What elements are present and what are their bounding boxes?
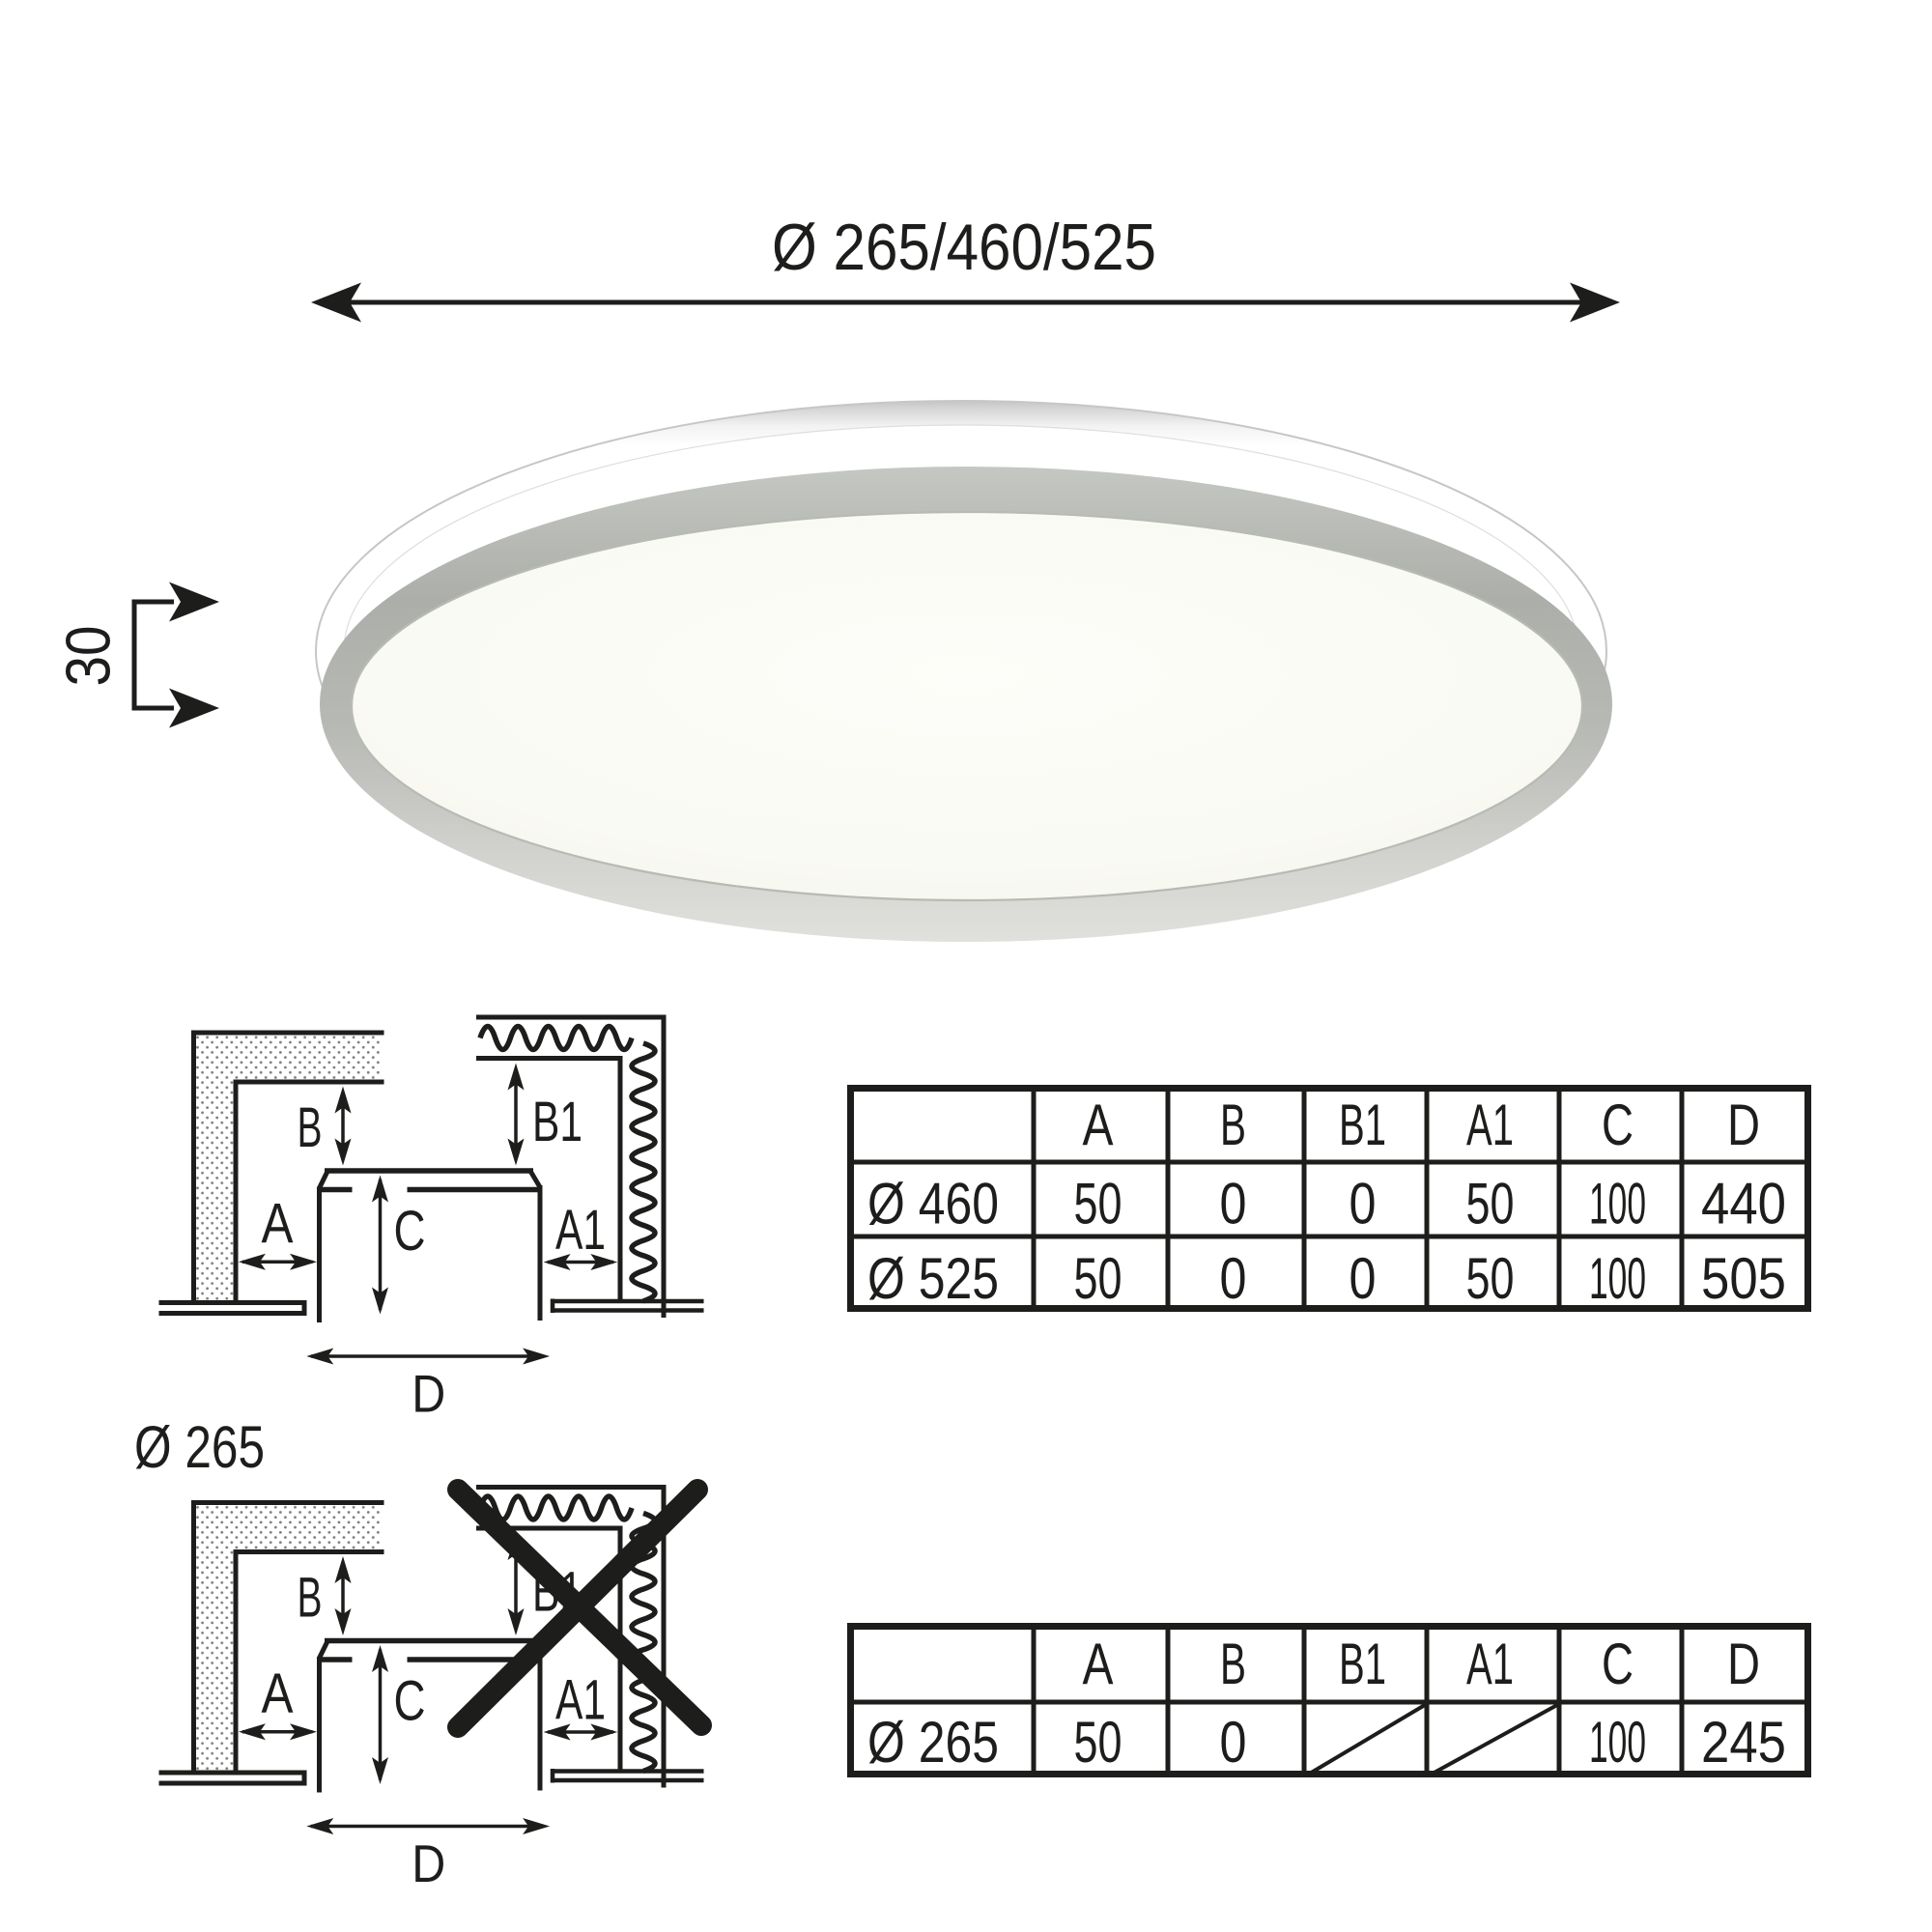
svg-text:A: A xyxy=(262,1193,294,1256)
svg-text:B1: B1 xyxy=(532,1091,582,1153)
svg-text:50: 50 xyxy=(1074,1710,1122,1775)
svg-text:100: 100 xyxy=(1589,1710,1646,1775)
svg-text:A: A xyxy=(1083,1632,1114,1696)
svg-text:C: C xyxy=(1602,1632,1634,1696)
svg-text:B: B xyxy=(298,1567,323,1630)
svg-text:100: 100 xyxy=(1589,1172,1646,1236)
svg-text:A1: A1 xyxy=(555,1668,606,1731)
svg-text:50: 50 xyxy=(1466,1172,1515,1236)
svg-text:0: 0 xyxy=(1220,1710,1247,1775)
svg-text:50: 50 xyxy=(1074,1172,1122,1236)
svg-text:C: C xyxy=(394,1669,426,1732)
svg-text:0: 0 xyxy=(1350,1172,1377,1236)
svg-text:100: 100 xyxy=(1589,1246,1646,1311)
svg-text:D: D xyxy=(1727,1632,1760,1696)
svg-text:B: B xyxy=(298,1096,323,1159)
svg-text:A1: A1 xyxy=(555,1199,606,1262)
svg-text:440: 440 xyxy=(1701,1172,1786,1236)
svg-text:D: D xyxy=(412,1833,445,1893)
svg-text:D: D xyxy=(1727,1093,1760,1157)
svg-text:505: 505 xyxy=(1701,1246,1786,1311)
svg-text:30: 30 xyxy=(53,626,124,687)
svg-text:B: B xyxy=(1220,1093,1246,1157)
svg-text:Ø 265: Ø 265 xyxy=(867,1710,999,1775)
svg-text:245: 245 xyxy=(1701,1710,1786,1775)
svg-text:A: A xyxy=(262,1662,294,1725)
svg-text:0: 0 xyxy=(1220,1246,1247,1311)
svg-text:B: B xyxy=(1220,1632,1246,1696)
svg-text:B1: B1 xyxy=(1339,1632,1386,1696)
svg-text:Ø 265: Ø 265 xyxy=(134,1414,265,1480)
svg-text:C: C xyxy=(1602,1093,1634,1157)
svg-text:B1: B1 xyxy=(1339,1093,1386,1157)
svg-text:Ø 525: Ø 525 xyxy=(867,1246,999,1311)
svg-text:D: D xyxy=(412,1363,445,1423)
svg-text:Ø 460: Ø 460 xyxy=(867,1172,999,1236)
svg-text:50: 50 xyxy=(1074,1246,1122,1311)
svg-text:A: A xyxy=(1083,1093,1114,1157)
svg-text:A1: A1 xyxy=(1466,1632,1514,1696)
svg-text:A1: A1 xyxy=(1466,1093,1514,1157)
svg-text:C: C xyxy=(394,1200,426,1263)
svg-text:0: 0 xyxy=(1350,1246,1377,1311)
svg-text:50: 50 xyxy=(1466,1246,1515,1311)
svg-text:Ø 265/460/525: Ø 265/460/525 xyxy=(772,211,1156,284)
svg-text:0: 0 xyxy=(1220,1172,1247,1236)
